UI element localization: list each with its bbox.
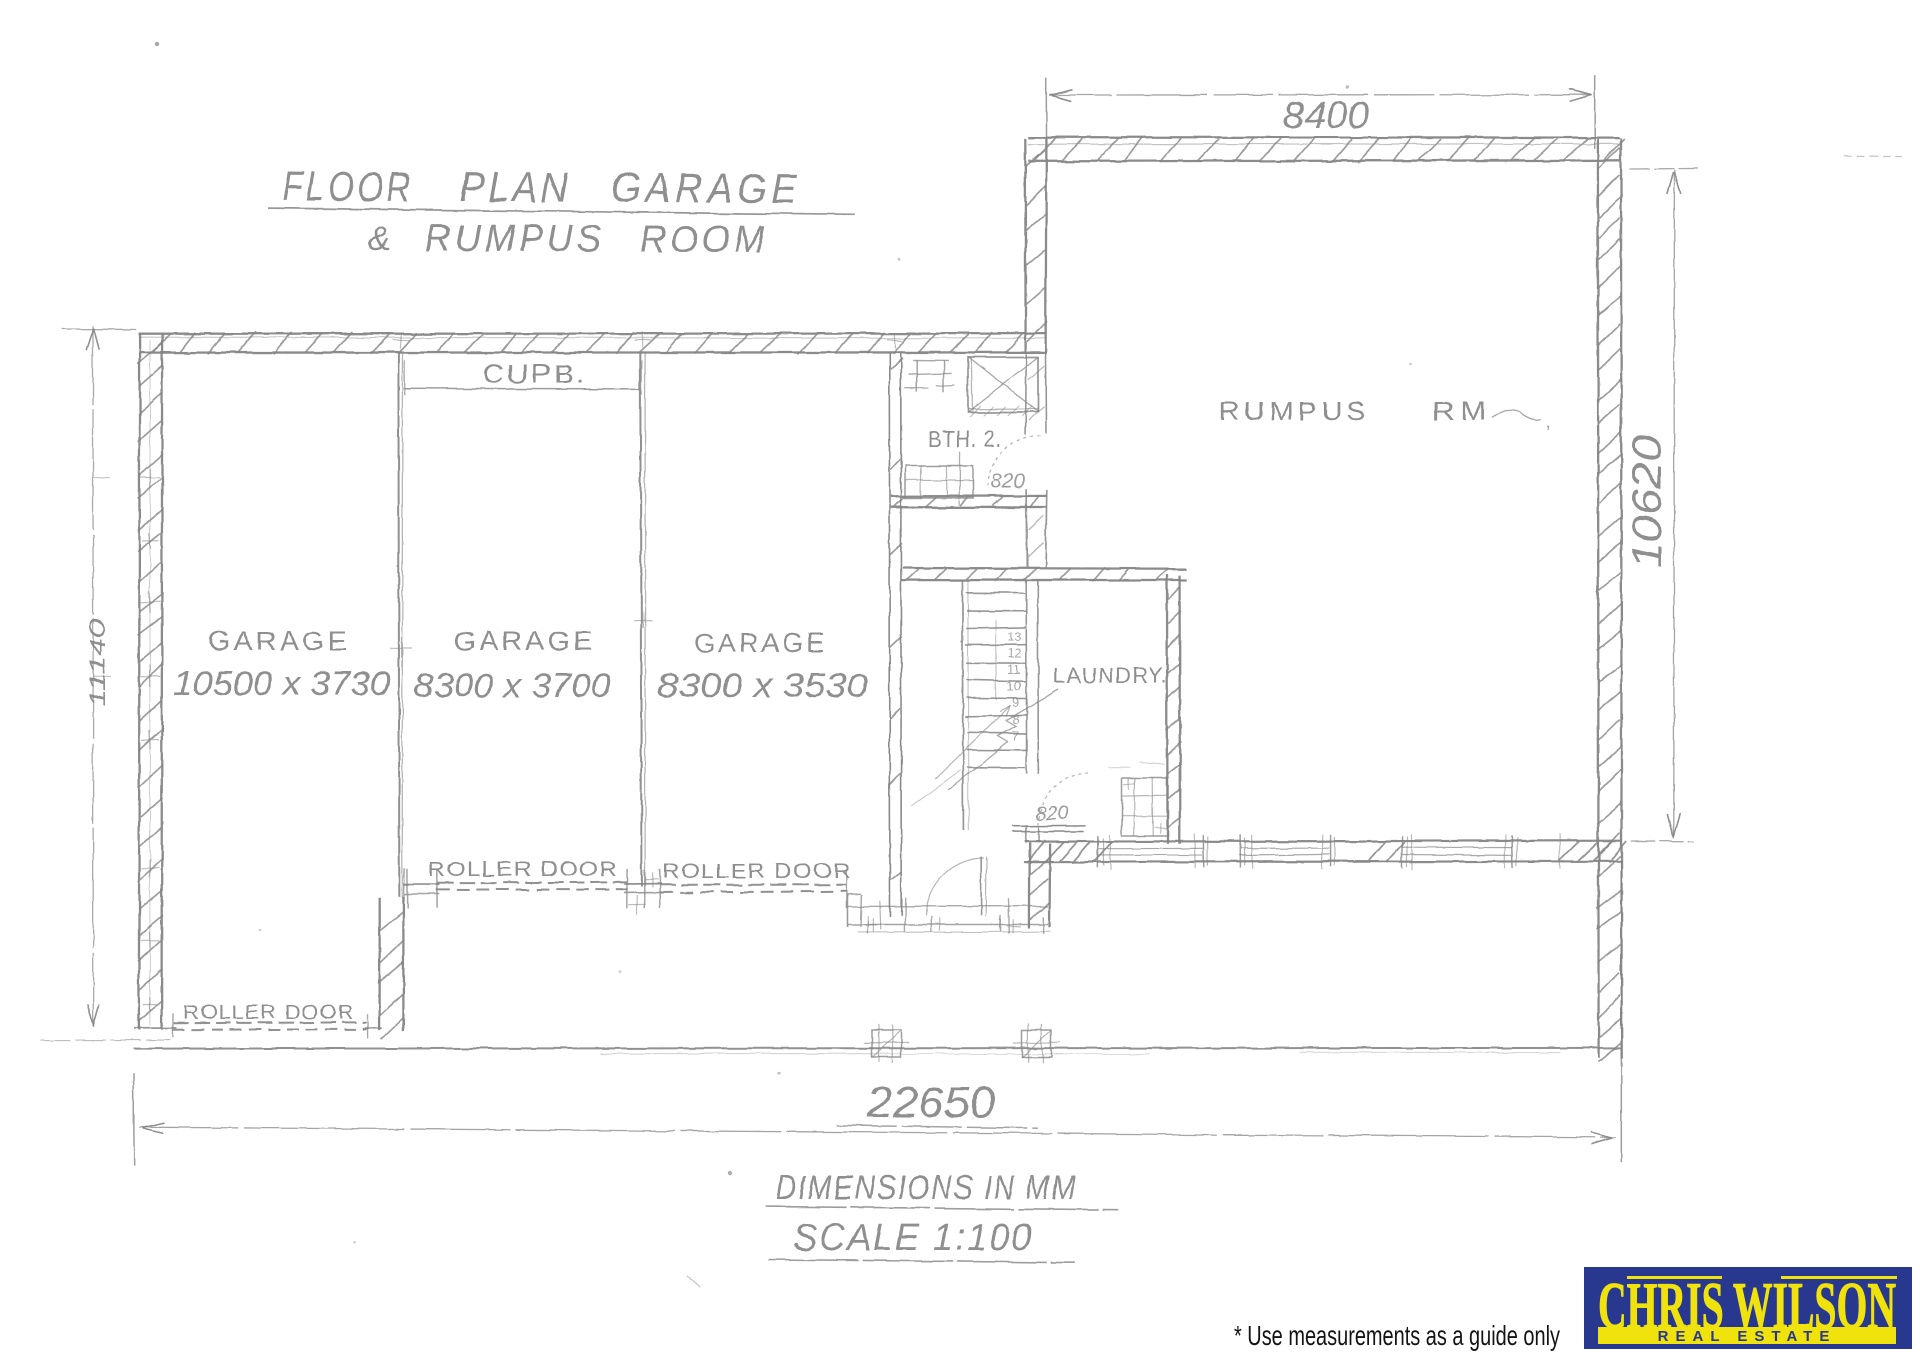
svg-text:8300 x 3530: 8300 x 3530: [657, 667, 868, 705]
svg-text:GARAGE: GARAGE: [611, 163, 801, 212]
svg-text:820: 820: [990, 470, 1025, 493]
svg-text:12: 12: [1007, 646, 1021, 661]
svg-text:FLOOR: FLOOR: [282, 162, 414, 210]
svg-text:BTH. 2.: BTH. 2.: [928, 426, 1002, 452]
svg-text:PLAN: PLAN: [460, 163, 571, 211]
svg-text:LAUNDRY.: LAUNDRY.: [1053, 663, 1168, 688]
svg-text:ROLLER DOOR: ROLLER DOOR: [662, 860, 852, 883]
svg-text:ROLLER DOOR: ROLLER DOOR: [428, 858, 618, 881]
svg-text:RM: RM: [1432, 396, 1492, 426]
svg-text:,: ,: [1545, 408, 1551, 433]
svg-text:11: 11: [1007, 662, 1021, 677]
svg-text:8300 x 3700: 8300 x 3700: [414, 667, 611, 705]
svg-text:7: 7: [1012, 728, 1019, 743]
svg-text:CUPB.: CUPB.: [482, 359, 587, 389]
svg-text:REAL ESTATE: REAL ESTATE: [1658, 1328, 1837, 1345]
svg-text:820: 820: [1035, 803, 1068, 825]
svg-text:11140: 11140: [85, 618, 110, 707]
svg-text:ROLLER DOOR: ROLLER DOOR: [183, 1002, 355, 1024]
svg-text:GARAGE: GARAGE: [694, 628, 827, 658]
svg-text:DIMENSIONS IN MM: DIMENSIONS IN MM: [776, 1169, 1077, 1207]
svg-text:9: 9: [1012, 695, 1019, 710]
svg-text:* Use measurements as a guide: * Use measurements as a guide only: [1234, 1320, 1560, 1351]
svg-text:ROOM: ROOM: [640, 219, 768, 261]
svg-text:8400: 8400: [1283, 95, 1369, 137]
svg-text:GARAGE: GARAGE: [208, 626, 350, 656]
svg-text:RUMPUS: RUMPUS: [425, 218, 605, 260]
svg-text:10: 10: [1007, 679, 1021, 694]
svg-text:RUMPUS: RUMPUS: [1219, 396, 1370, 426]
svg-text:10500 x 3730: 10500 x 3730: [173, 665, 390, 703]
svg-text:SCALE 1:100: SCALE 1:100: [793, 1217, 1033, 1259]
svg-text:13: 13: [1007, 629, 1021, 644]
svg-text:22650: 22650: [866, 1078, 996, 1127]
svg-text:GARAGE: GARAGE: [454, 626, 595, 656]
svg-text:&: &: [368, 220, 391, 258]
svg-text:10620: 10620: [1623, 434, 1670, 569]
